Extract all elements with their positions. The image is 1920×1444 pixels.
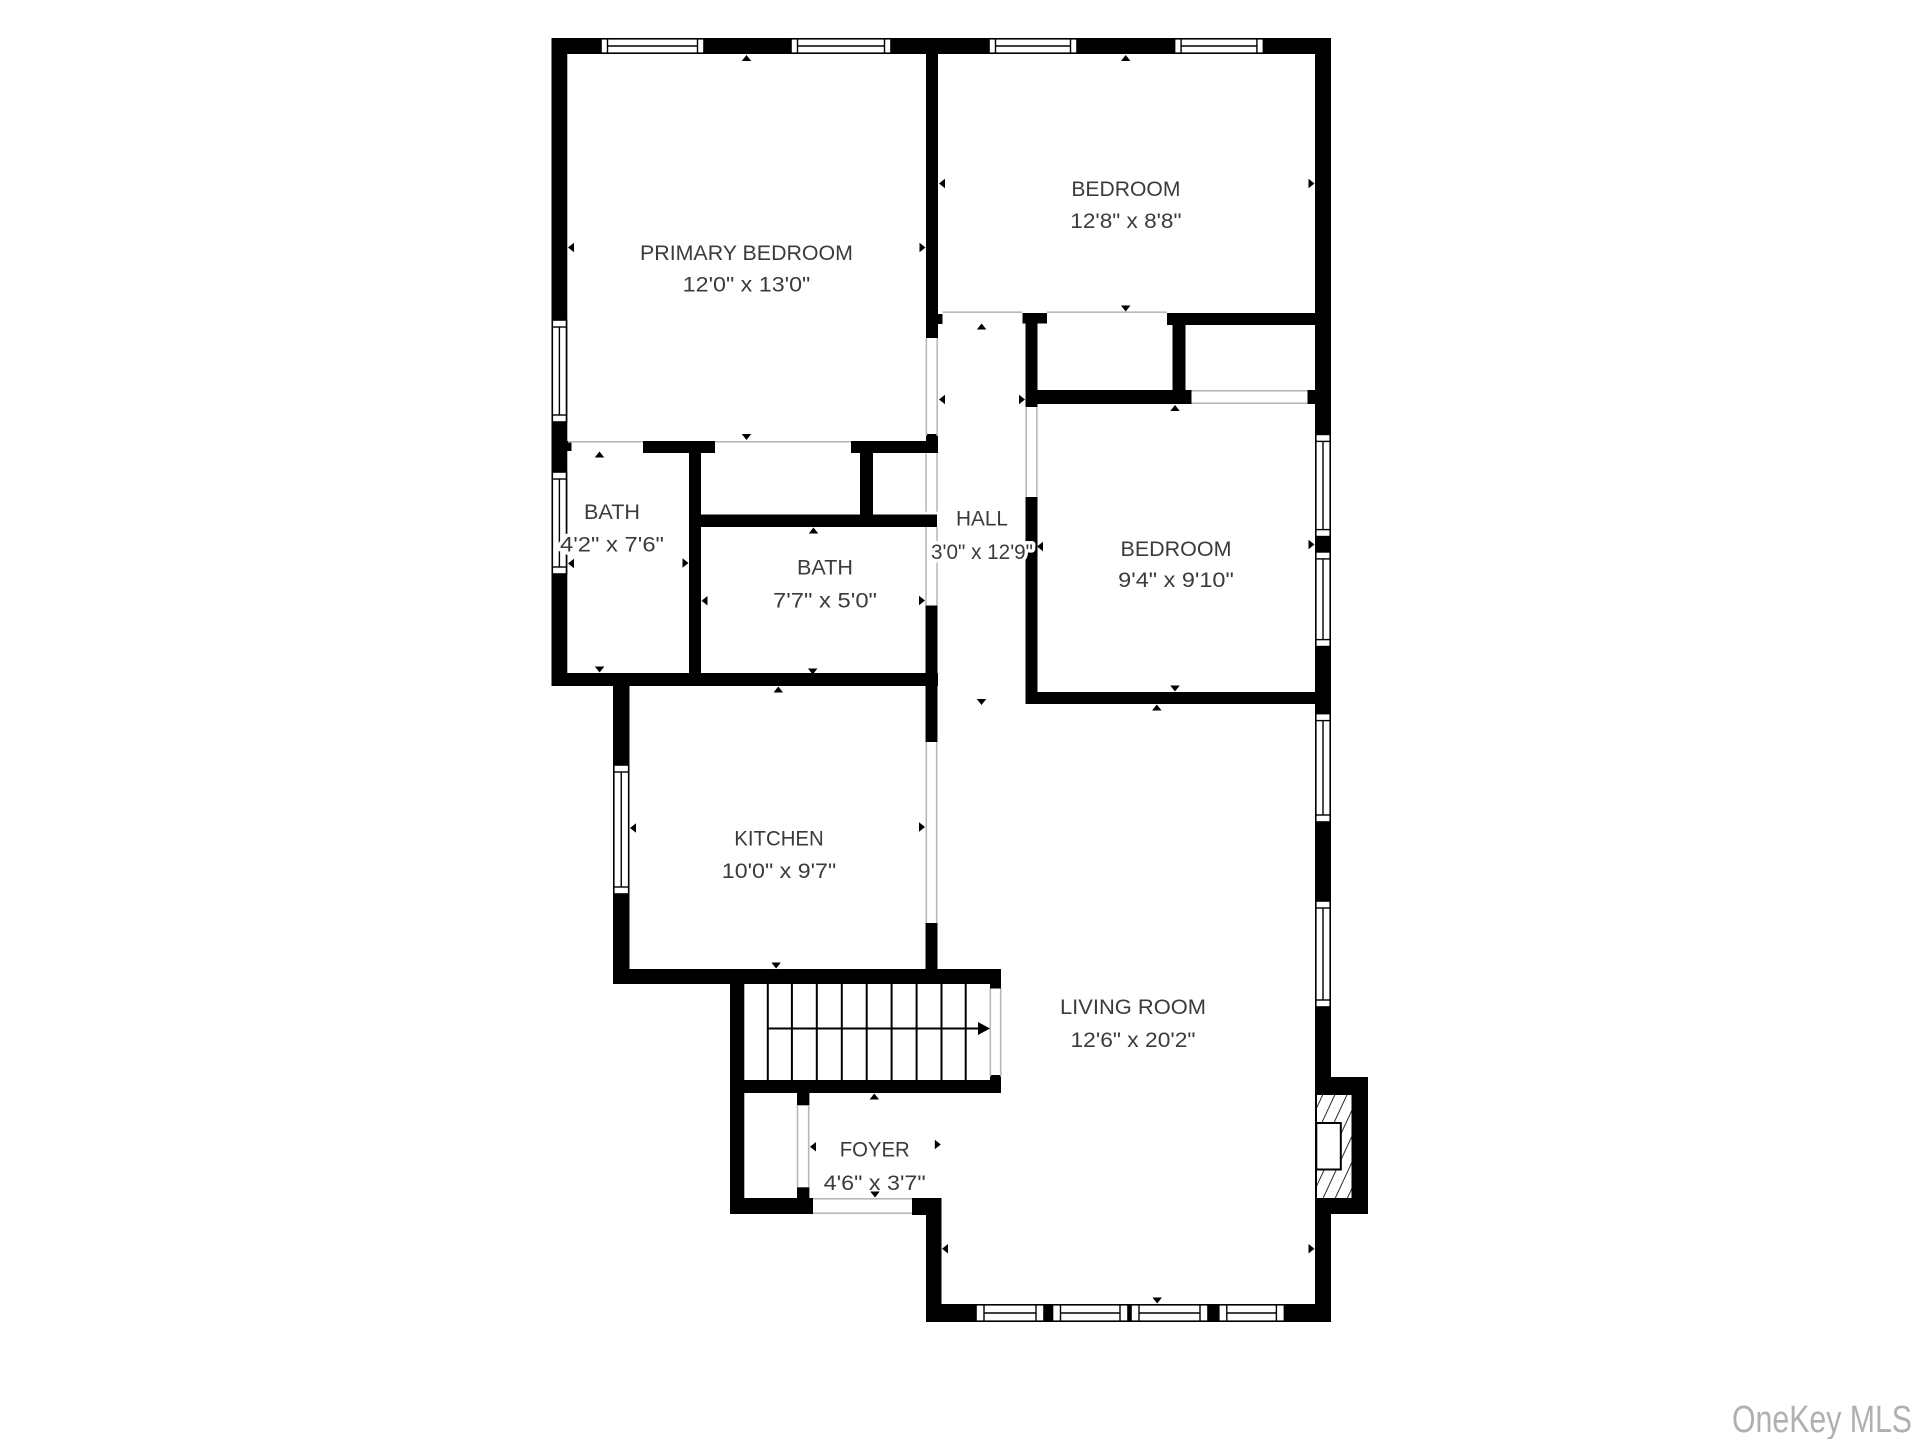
svg-text:12'8" x 8'8": 12'8" x 8'8" (1070, 208, 1181, 233)
svg-text:PRIMARY BEDROOM: PRIMARY BEDROOM (640, 240, 853, 265)
svg-text:3'0" x 12'9": 3'0" x 12'9" (931, 539, 1033, 564)
svg-text:OneKey MLS: OneKey MLS (1732, 1398, 1912, 1439)
svg-text:BATH: BATH (584, 499, 640, 524)
svg-text:FOYER: FOYER (840, 1136, 910, 1161)
svg-text:BATH: BATH (797, 555, 853, 580)
svg-text:BEDROOM: BEDROOM (1071, 176, 1180, 201)
svg-text:9'4" x 9'10": 9'4" x 9'10" (1118, 567, 1234, 592)
svg-text:10'0" x 9'7": 10'0" x 9'7" (722, 858, 836, 883)
svg-text:HALL: HALL (956, 506, 1008, 531)
svg-text:4'2" x 7'6": 4'2" x 7'6" (560, 531, 664, 556)
svg-text:12'6" x 20'2": 12'6" x 20'2" (1071, 1027, 1196, 1052)
svg-text:BEDROOM: BEDROOM (1121, 536, 1232, 561)
svg-text:12'0" x 13'0": 12'0" x 13'0" (683, 271, 811, 296)
svg-text:7'7" x 5'0": 7'7" x 5'0" (773, 587, 877, 612)
svg-text:4'6" x 3'7": 4'6" x 3'7" (824, 1170, 926, 1195)
svg-text:KITCHEN: KITCHEN (734, 825, 823, 850)
svg-text:LIVING ROOM: LIVING ROOM (1060, 994, 1206, 1019)
